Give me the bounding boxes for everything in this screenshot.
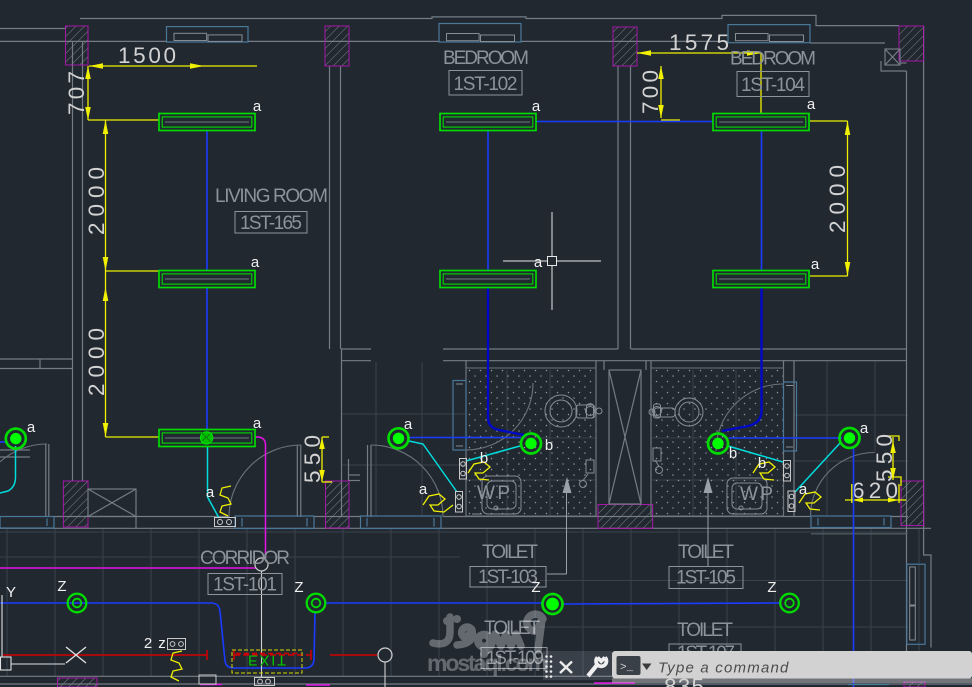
svg-text:EXIT: EXIT (248, 652, 286, 668)
svg-text:707: 707 (64, 71, 89, 115)
svg-text:b: b (480, 450, 488, 467)
svg-text:BEDROOM: BEDROOM (730, 49, 816, 70)
svg-text:TOILET: TOILET (482, 542, 538, 563)
svg-text:b: b (729, 445, 737, 462)
svg-text:a: a (860, 420, 869, 437)
svg-text:>_: >_ (620, 662, 634, 674)
svg-text:BEDROOM: BEDROOM (443, 48, 529, 69)
svg-text:b: b (758, 455, 766, 472)
svg-text:700: 700 (638, 70, 663, 114)
svg-text:550: 550 (300, 435, 325, 483)
svg-text:mostaql.com: mostaql.com (427, 650, 548, 676)
svg-text:a: a (811, 256, 820, 273)
svg-text:a: a (419, 481, 428, 498)
svg-text:550: 550 (872, 434, 897, 482)
svg-text:TOILET: TOILET (677, 620, 733, 641)
svg-text:Z: Z (294, 579, 303, 596)
svg-text:1ST-103: 1ST-103 (478, 567, 538, 588)
svg-text:a: a (532, 98, 541, 115)
svg-text:1ST-165: 1ST-165 (240, 213, 302, 234)
svg-text:b: b (545, 437, 553, 454)
svg-text:1ST-104: 1ST-104 (741, 75, 805, 96)
svg-text:1ST-101: 1ST-101 (213, 575, 277, 596)
svg-text:a: a (251, 254, 260, 271)
svg-text:a: a (253, 415, 262, 432)
svg-text:LIVING ROOM: LIVING ROOM (215, 186, 328, 207)
svg-text:CORRIDOR: CORRIDOR (200, 548, 290, 569)
svg-text:a: a (807, 96, 816, 113)
svg-text:Type a command: Type a command (658, 660, 790, 677)
svg-text:Z: Z (531, 579, 540, 596)
svg-text:WP: WP (477, 483, 510, 504)
svg-text:1ST-102: 1ST-102 (454, 74, 518, 95)
svg-text:a: a (27, 419, 36, 436)
svg-text:a: a (534, 254, 543, 271)
svg-text:a: a (799, 481, 808, 498)
svg-text:Y: Y (6, 584, 16, 601)
svg-text:2: 2 (144, 635, 152, 652)
svg-text:TOILET: TOILET (678, 542, 734, 563)
svg-text:z: z (158, 635, 166, 652)
svg-text:Z: Z (767, 579, 776, 596)
svg-text:a: a (206, 484, 215, 501)
svg-text:Z: Z (57, 578, 66, 595)
svg-text:a: a (253, 98, 262, 115)
svg-text:a: a (404, 416, 413, 433)
svg-text:1ST-105: 1ST-105 (676, 568, 736, 589)
svg-text:WP: WP (740, 484, 773, 505)
svg-text:620: 620 (852, 478, 898, 503)
